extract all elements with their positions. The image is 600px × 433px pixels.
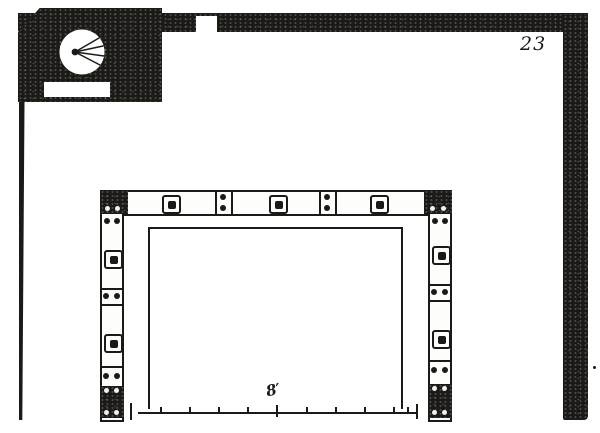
rivet-icon xyxy=(115,206,120,211)
plate-seam xyxy=(231,192,233,214)
corner-plate-top-left xyxy=(100,190,128,214)
corner-structure xyxy=(18,8,162,102)
bolt-icon xyxy=(432,330,451,349)
corner-structure-opening xyxy=(44,82,110,97)
rivet-icon xyxy=(220,194,226,200)
bolt-icon xyxy=(104,334,123,353)
plate-seam xyxy=(430,300,450,302)
bolt-icon xyxy=(104,250,123,269)
rivet-icon xyxy=(104,410,109,415)
plate-seam xyxy=(430,284,450,286)
scale-end-tick xyxy=(416,404,418,419)
rivet-icon xyxy=(442,367,448,373)
rivet-icon xyxy=(442,410,447,415)
fanlight-icon xyxy=(59,29,105,75)
rivet-icon xyxy=(103,293,109,299)
rivet-icon xyxy=(103,373,109,379)
scale-baseline xyxy=(138,412,418,414)
bolt-icon xyxy=(269,195,288,214)
rivet-icon xyxy=(114,388,119,393)
bolt-icon xyxy=(370,195,389,214)
plate-seam xyxy=(215,192,217,214)
scale-end-tick xyxy=(130,403,132,420)
rivet-icon xyxy=(324,205,330,211)
rivet-icon xyxy=(324,194,330,200)
rivet-icon xyxy=(114,218,120,224)
rivet-icon xyxy=(430,206,435,211)
ink-speck xyxy=(593,366,596,369)
rivet-icon xyxy=(431,367,437,373)
rivet-icon xyxy=(432,218,438,224)
rivet-icon xyxy=(114,410,119,415)
engraving-plate: 23 xyxy=(0,0,600,433)
wall-right xyxy=(563,15,588,420)
wall-top-gap xyxy=(196,16,217,33)
plate-seam xyxy=(102,304,122,306)
plate-seam xyxy=(102,288,122,290)
scale-tick xyxy=(407,407,409,413)
rivet-icon xyxy=(104,218,110,224)
plate-seam xyxy=(430,360,450,362)
rivet-icon xyxy=(104,388,109,393)
page-number: 23 xyxy=(520,33,546,55)
rivet-icon xyxy=(114,293,120,299)
rivet-icon xyxy=(441,206,446,211)
rivet-icon xyxy=(114,373,120,379)
rivet-icon xyxy=(432,386,437,391)
rivet-icon xyxy=(442,218,448,224)
bolt-icon xyxy=(432,246,451,265)
rivet-icon xyxy=(442,386,447,391)
rivet-icon xyxy=(105,206,110,211)
corner-plate-top-right xyxy=(424,190,452,214)
rivet-icon xyxy=(220,205,226,211)
bolt-icon xyxy=(162,195,181,214)
plate-seam xyxy=(335,192,337,214)
rivet-icon xyxy=(442,289,448,295)
plate-seam xyxy=(319,192,321,214)
rivet-icon xyxy=(431,289,437,295)
rivet-icon xyxy=(432,410,437,415)
plate-seam xyxy=(102,366,122,368)
